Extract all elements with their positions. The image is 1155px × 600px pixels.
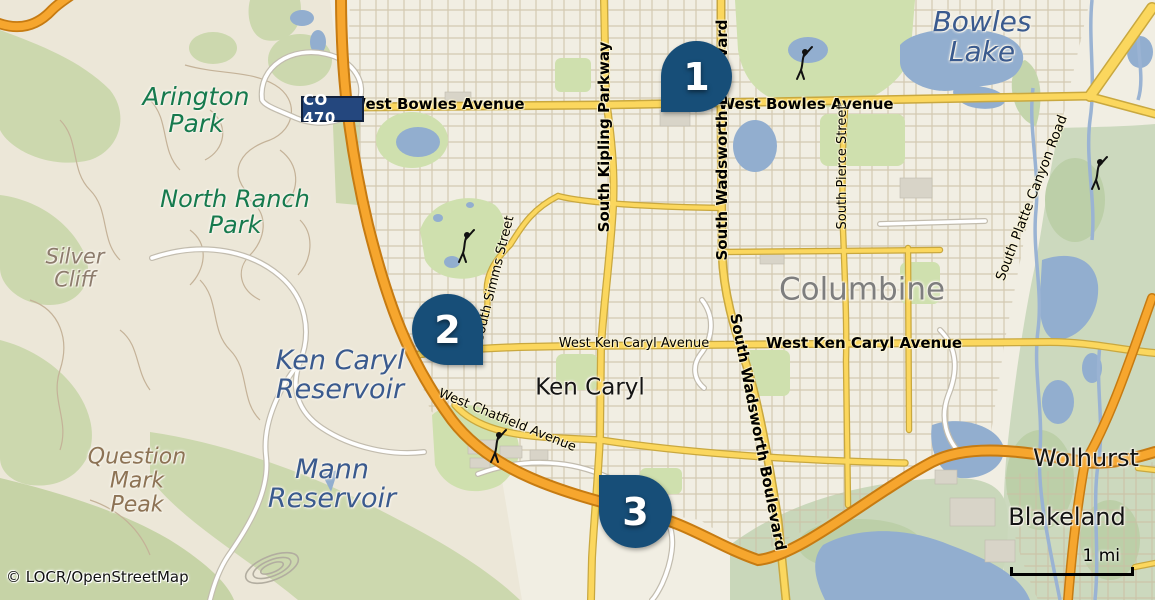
marker-1-number: 1 [683,55,709,99]
scale-bar: 1 mi [1010,546,1136,576]
scale-line [1010,567,1134,576]
marker-3-number: 3 [622,490,648,534]
map-attribution: © LOCR/OpenStreetMap [6,568,189,586]
map-viewport[interactable]: BowlesLake AringtonPark North RanchPark … [0,0,1155,600]
co-470-shield: CO 470 [301,96,364,122]
map-marker-3[interactable]: 3 [599,475,672,548]
marker-2-number: 2 [434,308,460,352]
map-canvas [0,0,1155,600]
scale-label: 1 mi [1010,546,1136,566]
map-marker-2[interactable]: 2 [412,294,483,365]
map-marker-1[interactable]: 1 [661,41,732,112]
